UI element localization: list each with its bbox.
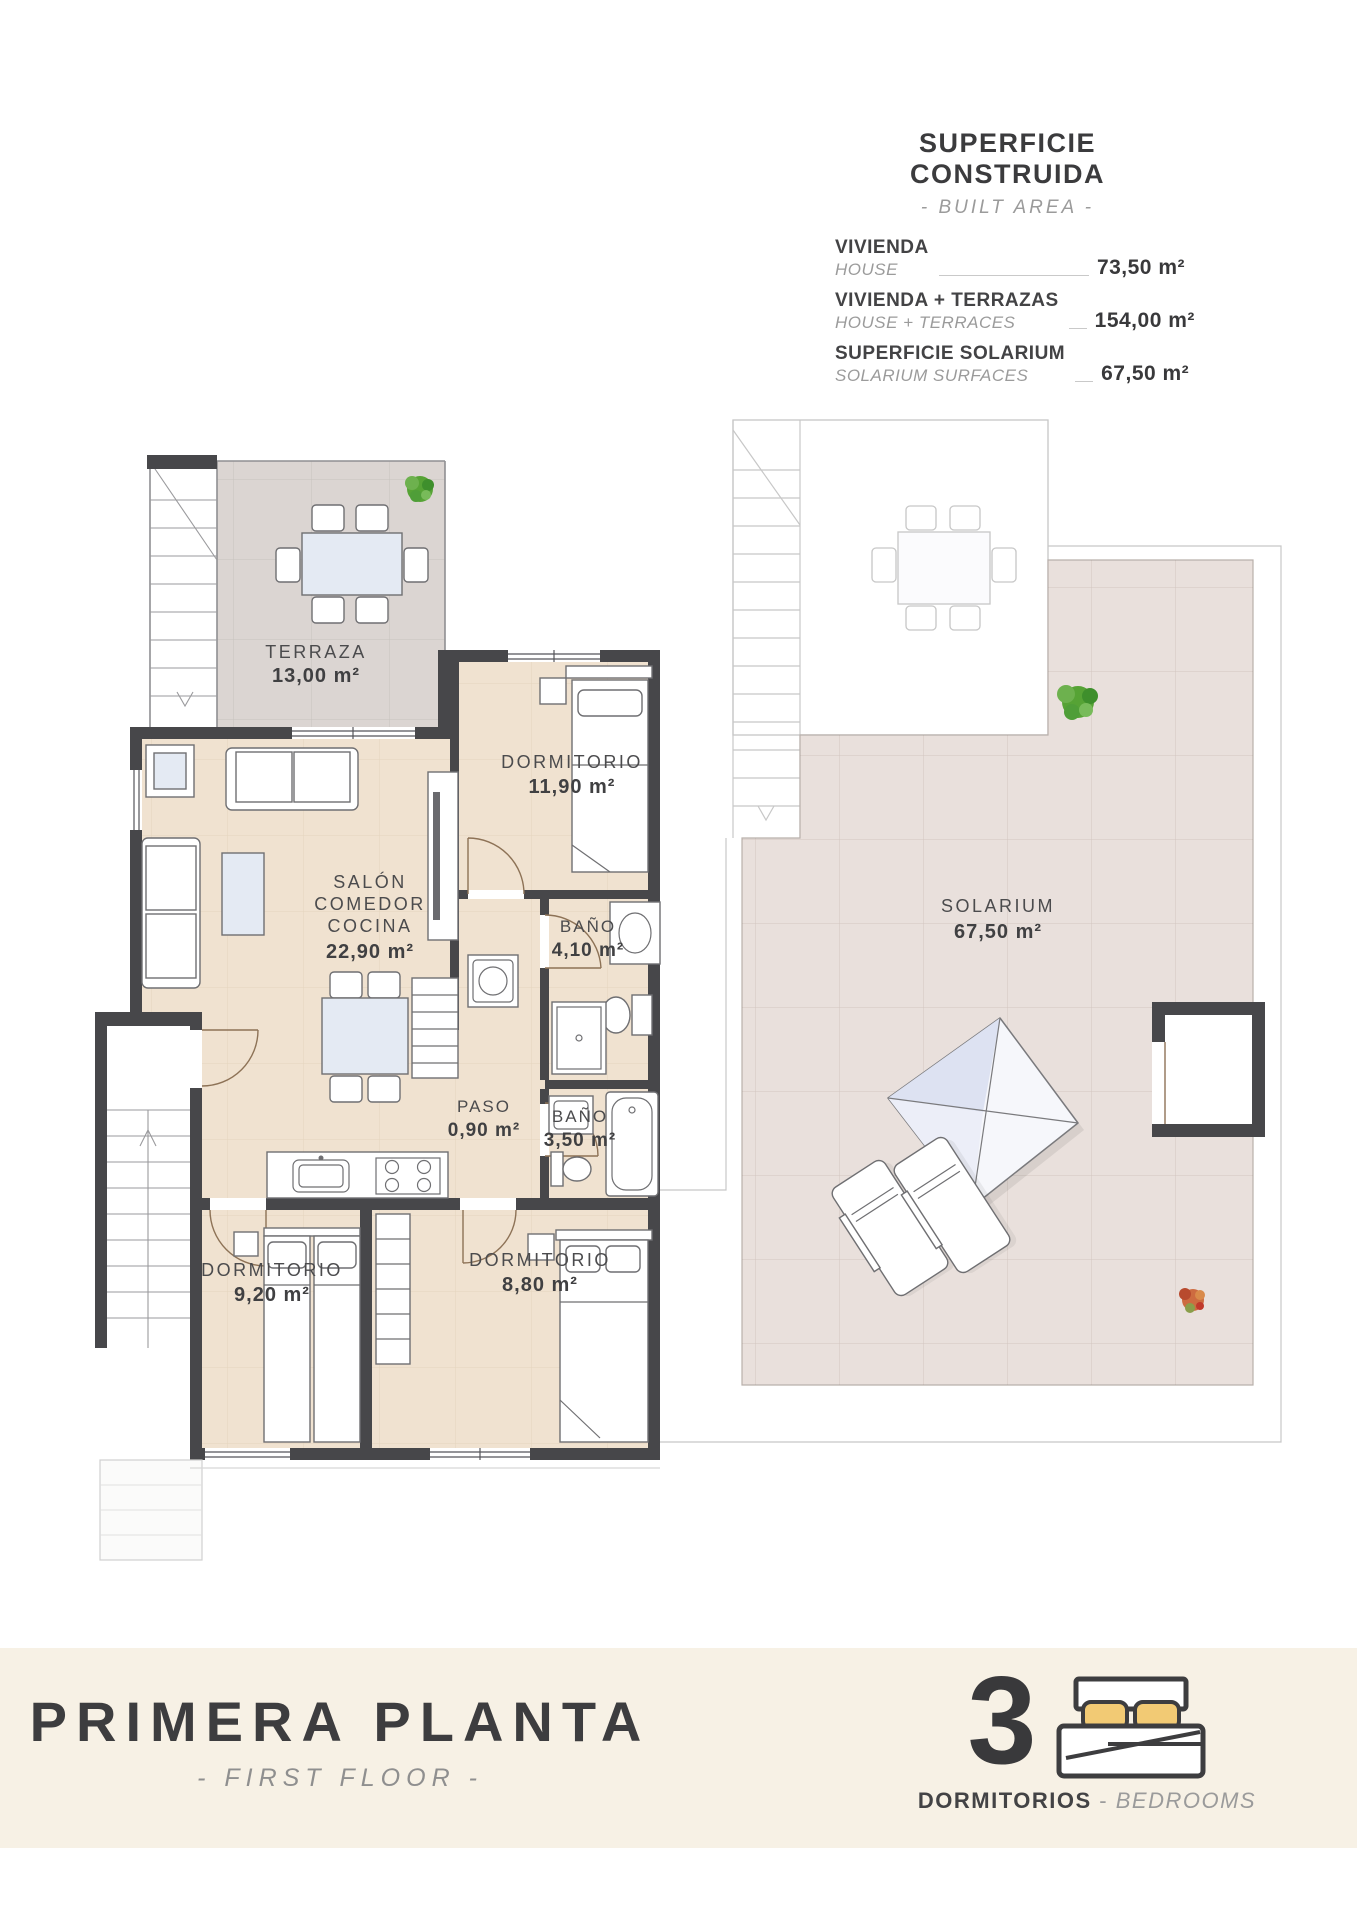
window — [430, 1448, 530, 1460]
sofa — [226, 748, 358, 810]
room-label-paso: PASO — [457, 1097, 511, 1116]
shower-icon — [552, 1002, 606, 1074]
floor-title-en: - FIRST FLOOR - — [0, 1764, 680, 1793]
floor-title-block: PRIMERA PLANTA - FIRST FLOOR - — [0, 1694, 680, 1793]
room-area-paso: 0,90 m² — [448, 1120, 520, 1141]
room-area-salon: 22,90 m² — [326, 941, 414, 963]
coffee-table — [222, 853, 264, 935]
room-area-solarium: 67,50 m² — [954, 921, 1042, 943]
sofa — [142, 838, 200, 988]
floor-plan-drawing: SOLARIUM 67,50 m² — [0, 0, 1357, 1920]
room-label-salon-2: COMEDOR — [314, 894, 426, 914]
footer-band: PRIMERA PLANTA - FIRST FLOOR - 3 DORMITO… — [0, 1648, 1357, 1848]
nightstand — [540, 678, 566, 704]
room-area-terraza: 13,00 m² — [272, 665, 360, 687]
room-label-salon-1: SALÓN — [333, 871, 407, 892]
floor-title-es: PRIMERA PLANTA — [0, 1694, 680, 1750]
window — [508, 650, 600, 662]
room-area-dormitorio1: 11,90 m² — [529, 776, 616, 798]
bedrooms-label-en: BEDROOMS — [1116, 1788, 1256, 1813]
room-area-dormitorio2: 9,20 m² — [234, 1284, 310, 1306]
washing-machine-icon — [468, 955, 518, 1007]
room-area-bano2: 3,50 m² — [544, 1130, 616, 1151]
room-area-bano1: 4,10 m² — [552, 940, 624, 961]
kitchen-counter — [267, 1152, 448, 1198]
window — [292, 727, 415, 739]
room-label-bano1: BAÑO — [560, 917, 616, 936]
side-table-top — [154, 753, 186, 789]
room-label-salon-3: COCINA — [327, 916, 412, 936]
nightstand — [234, 1232, 258, 1256]
floor-plan-page: SUPERFICIE CONSTRUIDA - BUILT AREA - VIV… — [0, 0, 1357, 1920]
bedrooms-block: 3 DORMITORIOS - BEDROOMS — [872, 1656, 1302, 1814]
solarium-plan: SOLARIUM 67,50 m² — [640, 420, 1281, 1442]
bedrooms-label-separator: - — [1099, 1788, 1108, 1813]
bedrooms-count: 3 — [968, 1656, 1037, 1786]
shelf-unit — [412, 978, 458, 1078]
wardrobe — [376, 1214, 410, 1364]
room-label-bano2: BAÑO — [552, 1107, 608, 1126]
room-area-dormitorio3: 8,80 m² — [502, 1274, 578, 1296]
bedrooms-label-es: DORMITORIOS — [918, 1788, 1092, 1813]
roof-access-structure — [1152, 1002, 1265, 1137]
apartment-plan: TERRAZA 13,00 m² SALÓN COMEDOR COCINA 22… — [95, 455, 660, 1560]
bed-icon — [1056, 1676, 1206, 1780]
bedrooms-label: DORMITORIOS - BEDROOMS — [918, 1788, 1256, 1814]
tv-unit — [428, 772, 458, 940]
room-label-dormitorio3: DORMITORIO — [469, 1250, 611, 1270]
room-label-dormitorio1: DORMITORIO — [501, 752, 643, 772]
room-label-solarium: SOLARIUM — [941, 896, 1055, 916]
window — [130, 770, 142, 830]
window — [205, 1448, 290, 1460]
room-label-terraza: TERRAZA — [265, 642, 367, 662]
room-label-dormitorio2: DORMITORIO — [201, 1260, 343, 1280]
